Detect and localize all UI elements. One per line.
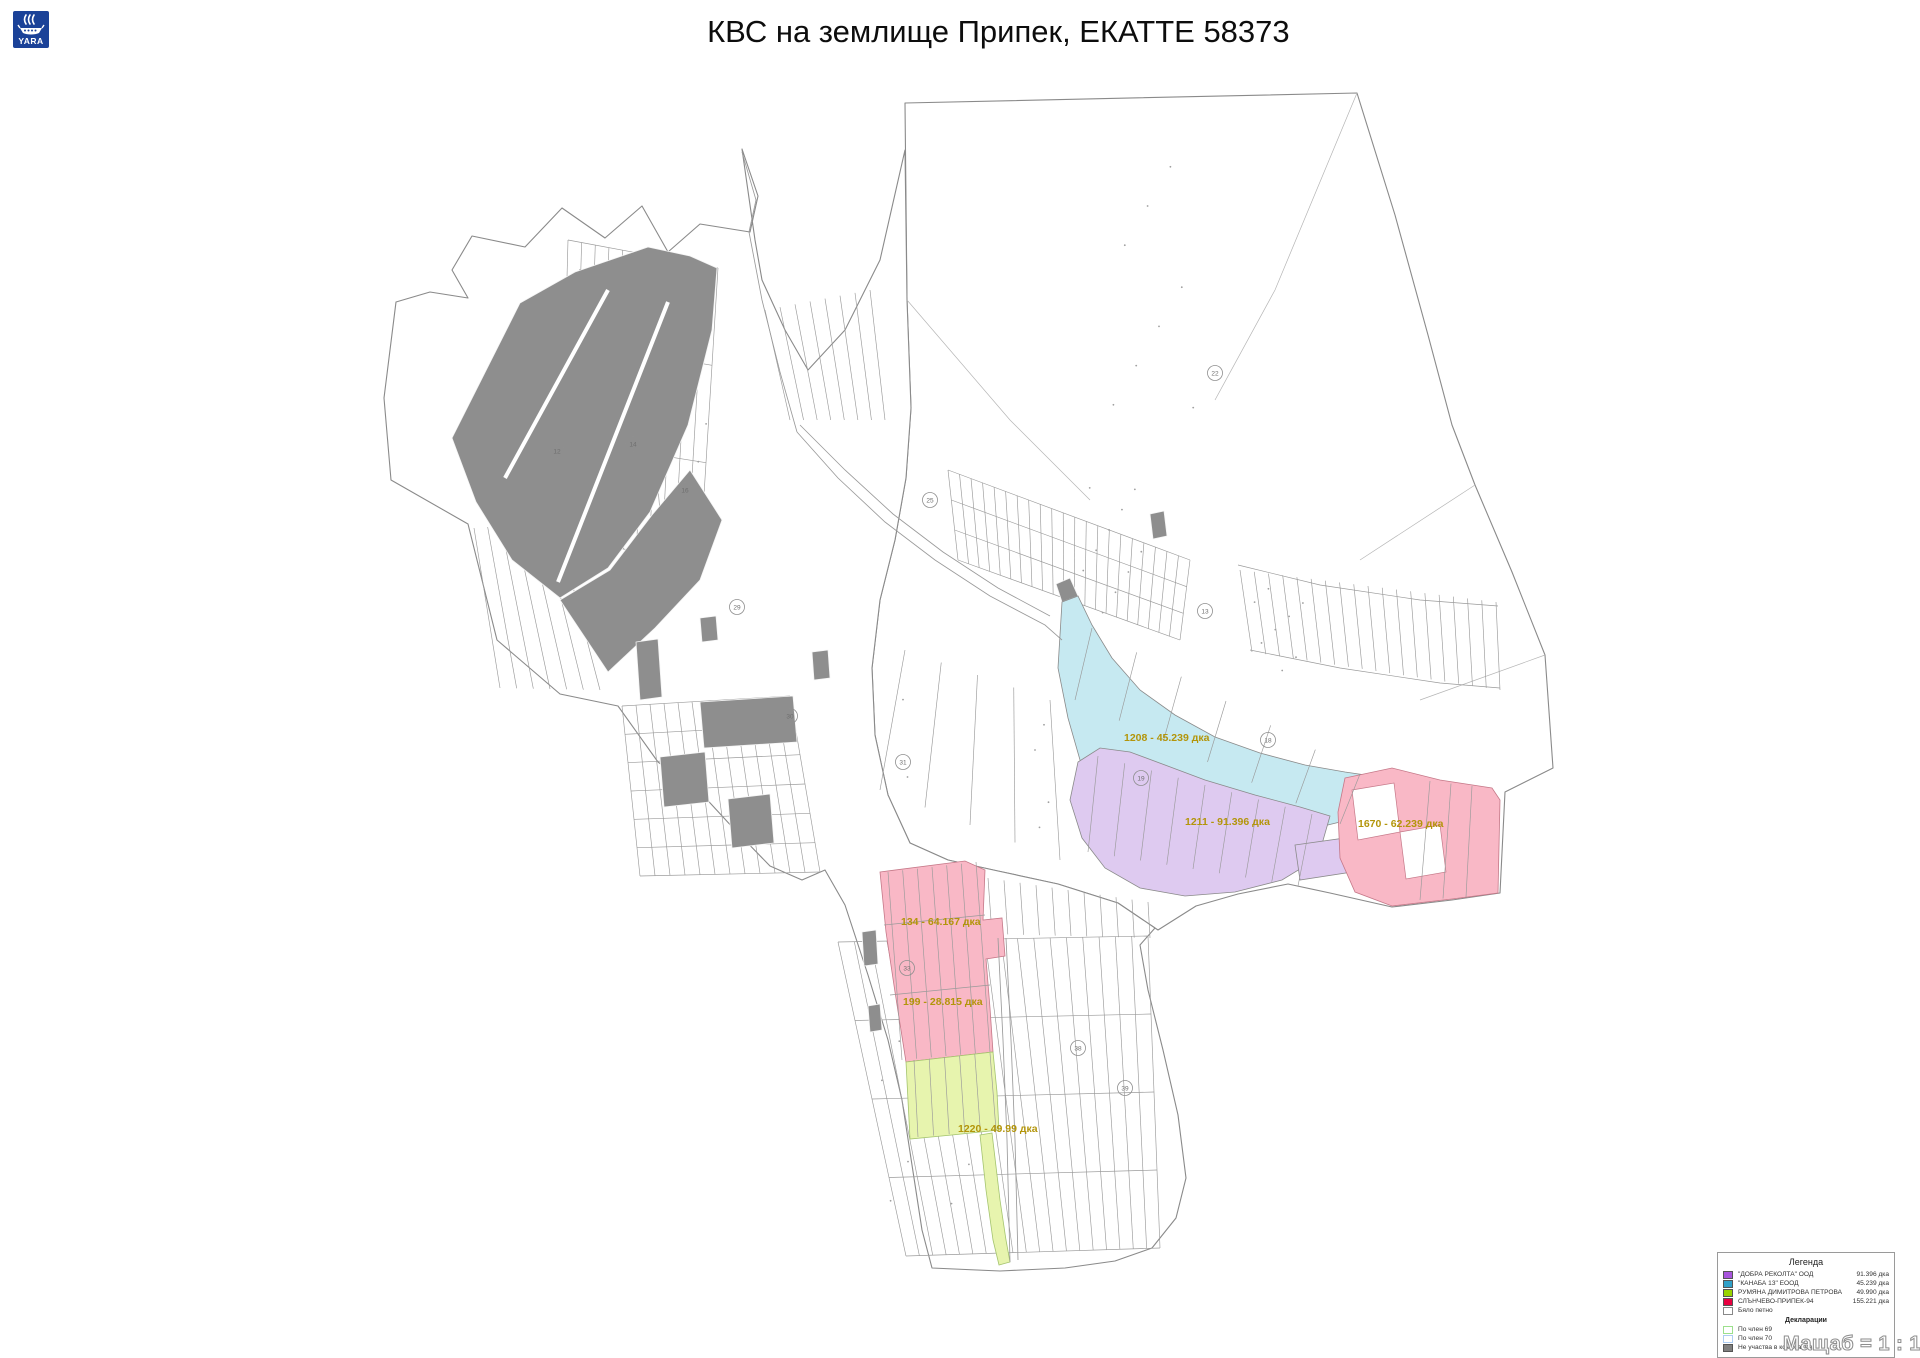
svg-text:31: 31: [899, 759, 907, 766]
legend-swatch-icon: [1723, 1271, 1733, 1279]
legend-item-label: По член 69: [1738, 1326, 1889, 1333]
legend-owner-list: "ДОБРА РЕКОЛТА" ООД91.396 дка"КАНАБА 13"…: [1723, 1270, 1889, 1315]
legend-swatch-icon: [1723, 1280, 1733, 1288]
parcel-label: 1211 - 91.396 дка: [1185, 816, 1270, 828]
cadastral-map: 1208 - 45.239 дка1211 - 91.396 дка1670 -…: [0, 0, 1920, 1357]
svg-text:25: 25: [926, 497, 934, 504]
legend-item: СЛЪНЧЕВО-ПРИПЕК-94155.221 дка: [1723, 1297, 1889, 1306]
parcel-label: 1220 - 49.99 дка: [958, 1123, 1038, 1135]
legend-title: Легенда: [1723, 1257, 1889, 1267]
legend-item-label: Бяло петно: [1738, 1307, 1889, 1314]
legend-swatch-icon: [1723, 1344, 1733, 1352]
legend-item: Бяло петно: [1723, 1306, 1889, 1315]
svg-text:16: 16: [681, 487, 689, 494]
parcel-label: 1670 - 62.239 дка: [1358, 818, 1444, 830]
legend-item-area: 45.239 дка: [1856, 1280, 1889, 1287]
legend-item: "ДОБРА РЕКОЛТА" ООД91.396 дка: [1723, 1270, 1889, 1279]
svg-text:39: 39: [1121, 1085, 1129, 1092]
legend-item: РУМЯНА ДИМИТРОВА ПЕТРОВА49.990 дка: [1723, 1288, 1889, 1297]
legend-item-area: 91.396 дка: [1856, 1271, 1889, 1278]
svg-text:19: 19: [1137, 775, 1145, 782]
svg-text:22: 22: [1211, 370, 1219, 377]
legend-item-label: "ДОБРА РЕКОЛТА" ООД: [1738, 1271, 1856, 1278]
map-canvas: 1208 - 45.239 дка1211 - 91.396 дка1670 -…: [0, 0, 1920, 1357]
legend-item-label: "КАНАБА 13" ЕООД: [1738, 1280, 1856, 1287]
legend-item-label: РУМЯНА ДИМИТРОВА ПЕТРОВА: [1738, 1289, 1856, 1296]
legend-item-area: 155.221 дка: [1853, 1298, 1889, 1305]
legend-swatch-icon: [1723, 1307, 1733, 1315]
scale-label: Мащаб = 1 : 1505: [1783, 1333, 1920, 1356]
parcel-label: 1208 - 45.239 дка: [1124, 732, 1210, 744]
svg-text:12: 12: [553, 448, 561, 455]
svg-text:38: 38: [1074, 1045, 1082, 1052]
legend-item: "КАНАБА 13" ЕООД45.239 дка: [1723, 1279, 1889, 1288]
parcel-label: 199 - 28.815 дка: [903, 996, 983, 1008]
svg-text:13: 13: [1201, 608, 1209, 615]
svg-text:33: 33: [903, 965, 911, 972]
svg-text:30: 30: [786, 713, 794, 720]
legend-swatch-icon: [1723, 1289, 1733, 1297]
legend-item-area: 49.990 дка: [1856, 1289, 1889, 1296]
legend-swatch-icon: [1723, 1326, 1733, 1334]
legend-declarations-title: Декларации: [1723, 1317, 1889, 1324]
legend-swatch-icon: [1723, 1298, 1733, 1306]
legend-item-label: СЛЪНЧЕВО-ПРИПЕК-94: [1738, 1298, 1853, 1305]
svg-text:29: 29: [733, 604, 741, 611]
logo-text: YARA: [18, 36, 43, 46]
svg-text:14: 14: [629, 441, 637, 448]
legend-swatch-icon: [1723, 1335, 1733, 1343]
svg-text:18: 18: [1264, 737, 1272, 744]
parcel-label: 134 - 64.167 дка: [901, 916, 981, 928]
